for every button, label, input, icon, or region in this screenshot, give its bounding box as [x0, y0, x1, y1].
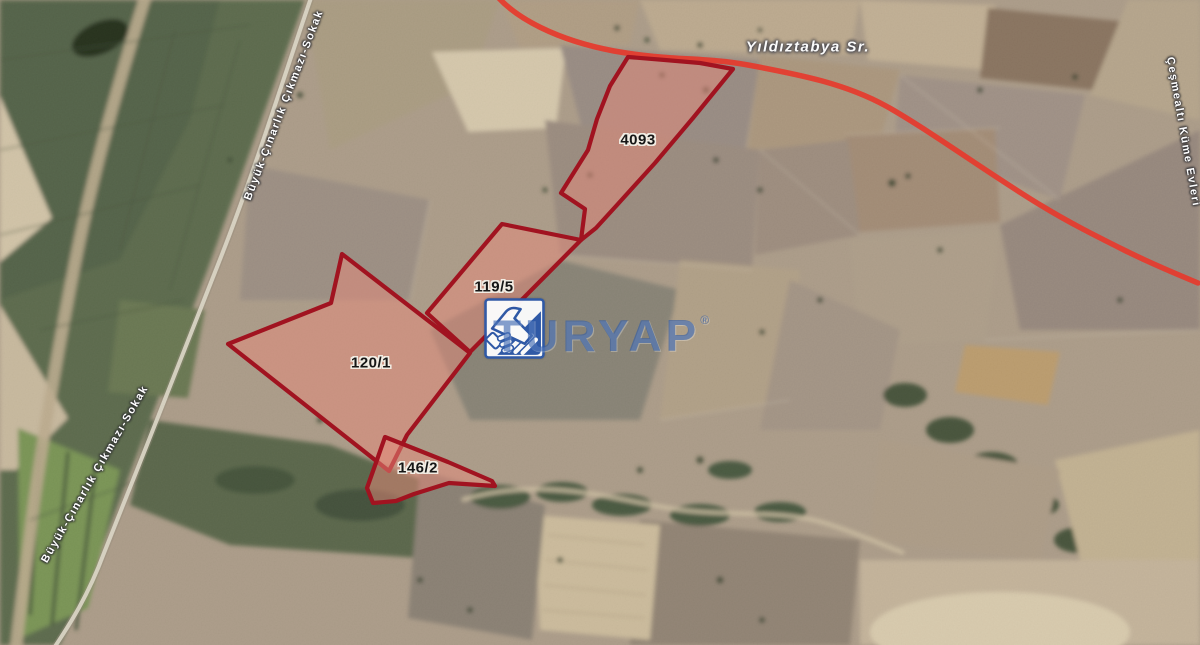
parcel-120-1-highlight[interactable] — [228, 254, 470, 471]
parcel-4093-highlight[interactable] — [561, 57, 733, 240]
parcel-119-5-highlight[interactable] — [427, 224, 581, 352]
parcel-146-2-highlight[interactable] — [367, 437, 495, 503]
satellite-map[interactable]: Yıldıztabya Sr. Büyük-Çınarlık Çıkmazı-S… — [0, 0, 1200, 645]
map-overlays — [0, 0, 1200, 645]
